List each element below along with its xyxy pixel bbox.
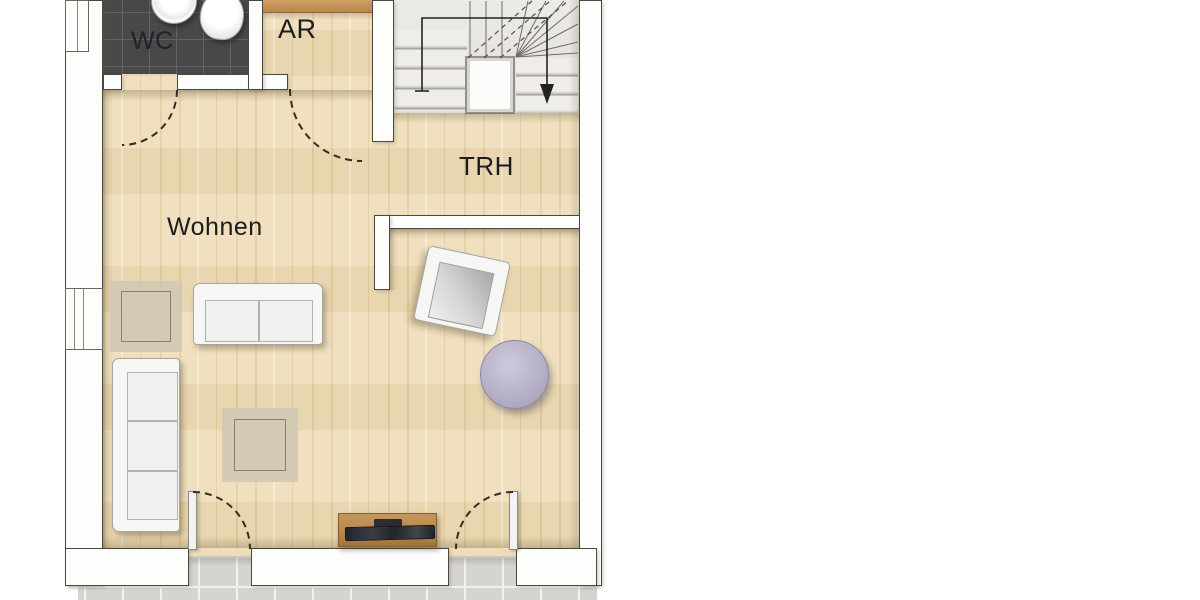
stair-arrow-down-icon <box>540 84 554 104</box>
terrace-door-arc-left <box>193 492 250 549</box>
floor-plan-canvas: WC AR TRH Wohnen <box>0 0 1200 600</box>
stair-winder-lines <box>470 1 578 57</box>
ar-door-arc <box>290 89 362 161</box>
room-label-trh: TRH <box>459 151 514 182</box>
room-label-wc: WC <box>131 27 174 56</box>
room-label-wohnen: Wohnen <box>167 213 263 242</box>
room-label-ar: AR <box>278 14 317 45</box>
wc-door-arc <box>122 90 177 145</box>
door-swing-arcs <box>122 89 513 549</box>
terrace-door-arc-right <box>456 492 513 549</box>
plan-linework <box>0 0 1200 600</box>
